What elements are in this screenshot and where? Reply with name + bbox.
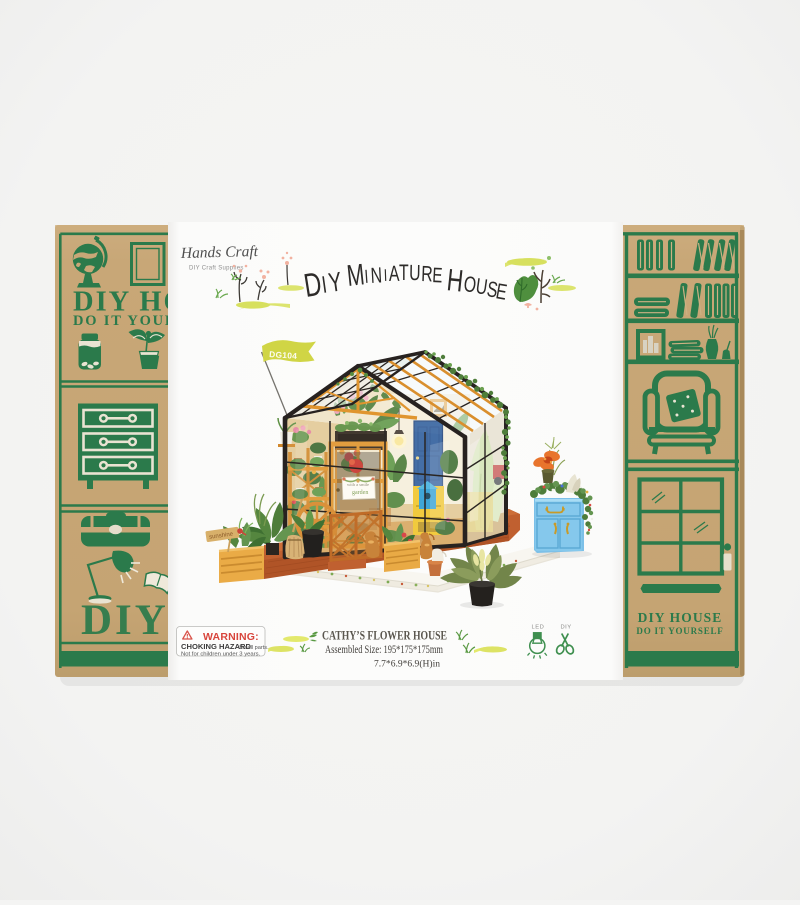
svg-text:N: N — [370, 264, 383, 289]
svg-text:Hands Craft: Hands Craft — [180, 243, 259, 262]
svg-text:DIY HOUSE: DIY HOUSE — [638, 610, 723, 625]
svg-text:DIY: DIY — [561, 625, 572, 631]
svg-text:7.7*6.9*6.9(H)in: 7.7*6.9*6.9(H)in — [374, 659, 440, 670]
svg-text:–Small parts.: –Small parts. — [236, 645, 269, 651]
svg-text:DG104: DG104 — [269, 349, 298, 361]
svg-text:T: T — [399, 262, 409, 286]
svg-text:Assembled Size: 195*175*175mm: Assembled Size: 195*175*175mm — [325, 644, 443, 656]
svg-text:LED: LED — [532, 625, 545, 631]
svg-text:E: E — [432, 263, 443, 288]
svg-text:M: M — [345, 259, 366, 293]
svg-text:Not for children under 3 years: Not for children under 3 years. — [181, 652, 261, 658]
svg-text:DIY: DIY — [81, 597, 169, 644]
svg-text:DIY Craft Supplies: DIY Craft Supplies — [189, 266, 244, 272]
svg-text:CATHY’S FLOWER HOUSE: CATHY’S FLOWER HOUSE — [322, 628, 447, 643]
svg-text:I: I — [384, 267, 388, 285]
svg-text:A: A — [389, 262, 400, 286]
svg-text:DO IT YOURSELF: DO IT YOURSELF — [636, 626, 723, 636]
svg-text:U: U — [409, 262, 421, 286]
